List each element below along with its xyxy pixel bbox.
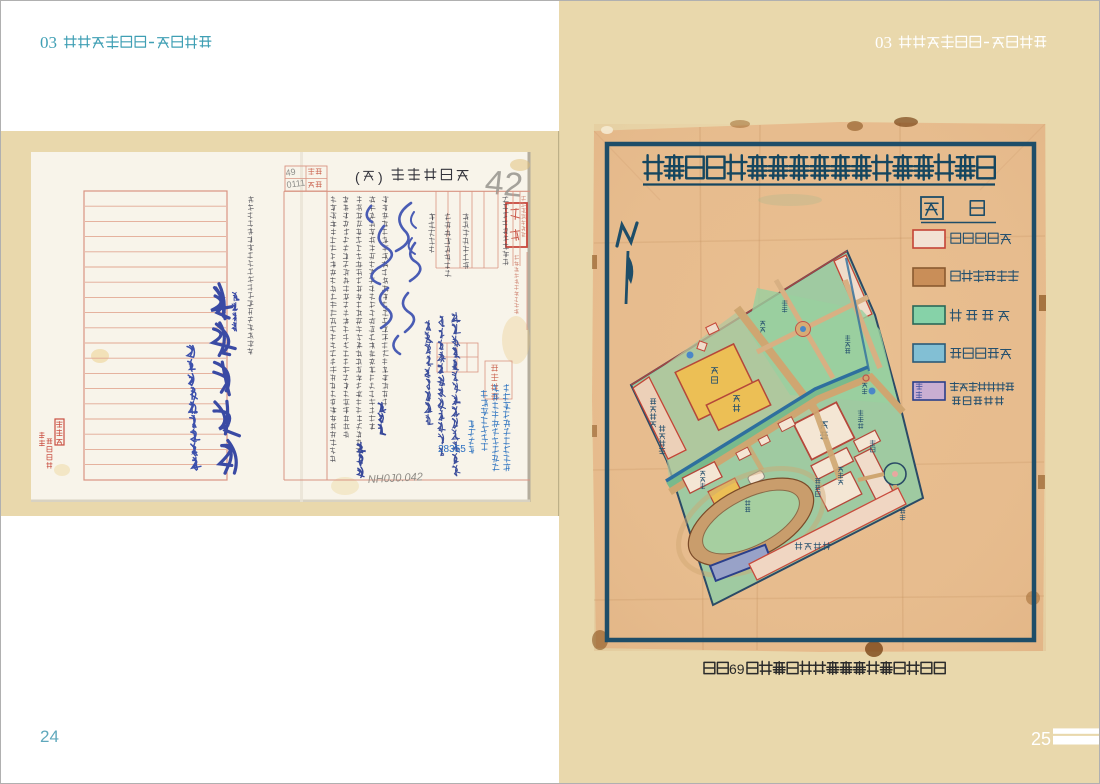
svg-text:(: (	[355, 169, 360, 185]
svg-text:03: 03	[40, 33, 57, 52]
svg-text:24: 24	[40, 727, 59, 746]
svg-text:): )	[378, 169, 383, 185]
svg-text:03: 03	[875, 33, 892, 52]
svg-text:25: 25	[1031, 729, 1051, 749]
svg-text:42: 42	[483, 163, 525, 205]
svg-text:69: 69	[729, 661, 745, 677]
svg-text:49: 49	[285, 167, 296, 178]
svg-text:28355: 28355	[438, 444, 466, 455]
